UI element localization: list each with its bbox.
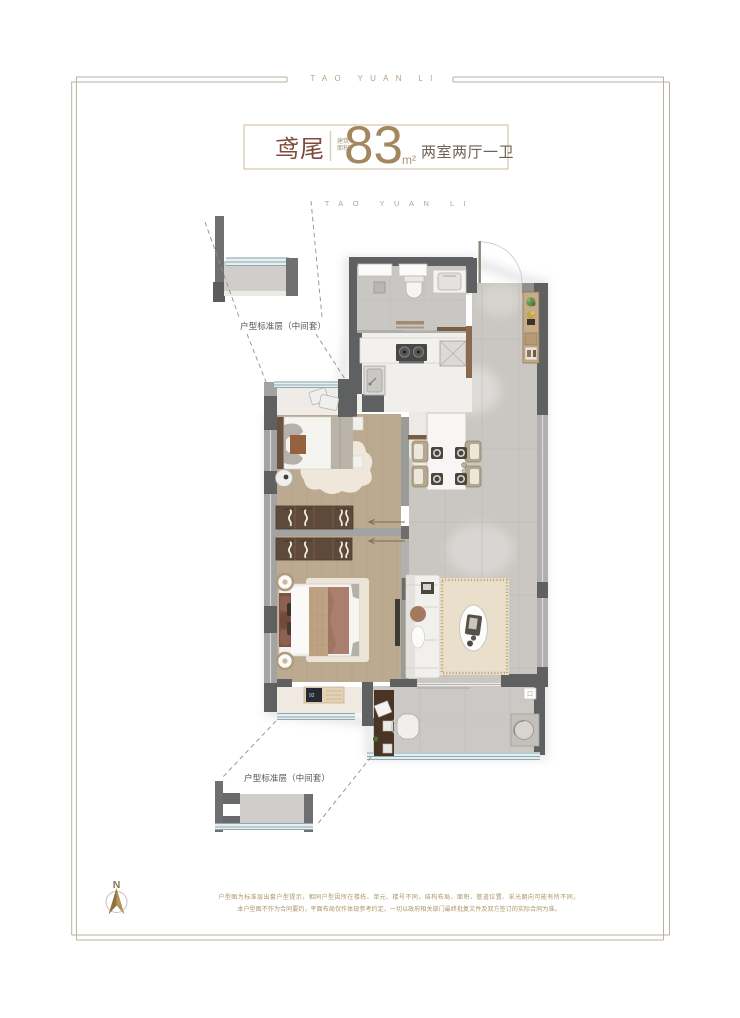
svg-text:TAO YUAN LI: TAO YUAN LI <box>325 199 476 208</box>
svg-text:92: 92 <box>309 693 315 699</box>
svg-text:户型标准层（中间套）: 户型标准层（中间套） <box>244 772 330 783</box>
svg-text:两室两厅一卫: 两室两厅一卫 <box>421 144 514 161</box>
svg-text:本户型图不作为合同要约，平面布局仅作体现参考约定，一切以政府: 本户型图不作为合同要约，平面布局仅作体现参考约定，一切以政府相关部门最终批复文件… <box>237 905 560 913</box>
svg-text:m²: m² <box>402 153 416 167</box>
svg-text:鸢尾: 鸢尾 <box>275 136 325 163</box>
svg-text:口: 口 <box>527 691 533 698</box>
svg-text:户型标准层（中间套）: 户型标准层（中间套） <box>240 320 326 331</box>
svg-text:83: 83 <box>344 116 403 175</box>
svg-text:户型图为标准层出套户型提示，相同户型因所在楼栋、单元、楼号不: 户型图为标准层出套户型提示，相同户型因所在楼栋、单元、楼号不同，结构布局、面积、… <box>218 893 579 901</box>
svg-text:TAO YUAN LI: TAO YUAN LI <box>310 74 439 83</box>
